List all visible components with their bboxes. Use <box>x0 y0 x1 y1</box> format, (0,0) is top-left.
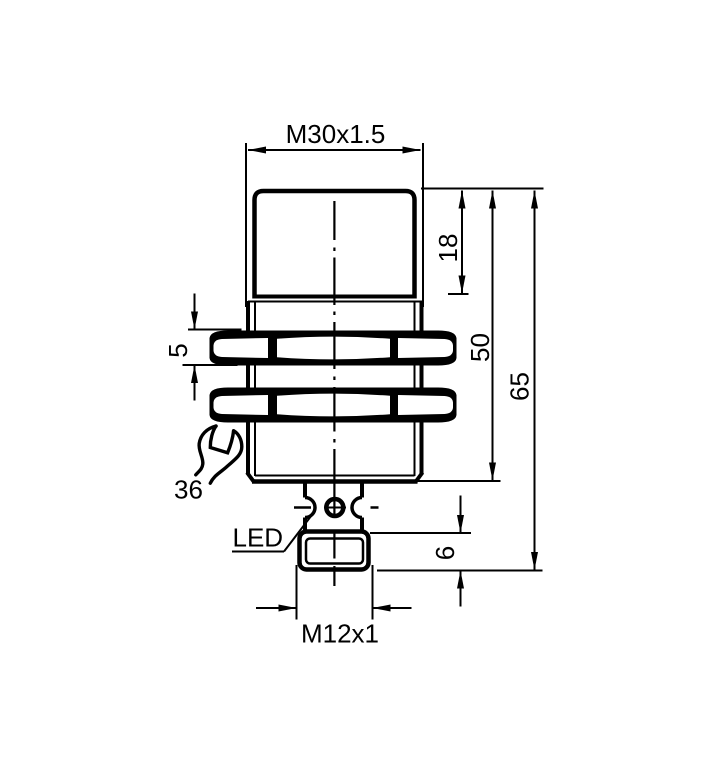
svg-text:36: 36 <box>174 475 203 505</box>
svg-text:LED: LED <box>233 523 284 553</box>
svg-text:18: 18 <box>433 234 463 263</box>
svg-text:6: 6 <box>430 546 460 560</box>
svg-text:M12x1: M12x1 <box>301 619 379 649</box>
svg-text:M30x1.5: M30x1.5 <box>286 119 386 149</box>
svg-text:5: 5 <box>163 343 193 357</box>
svg-text:65: 65 <box>505 372 535 401</box>
svg-text:50: 50 <box>465 333 495 362</box>
